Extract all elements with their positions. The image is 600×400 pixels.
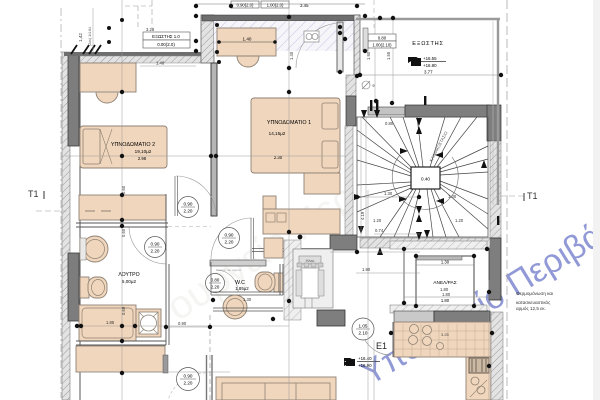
svg-text:1.00(2.10): 1.00(2.10): [372, 43, 392, 48]
svg-text:ΥΠΝΟΔΩΜΑΤΙΟ 2: ΥΠΝΟΔΩΜΑΤΙΟ 2: [111, 142, 155, 148]
svg-text:+16.40: +16.40: [358, 356, 372, 361]
svg-text:(2ον) 1/4:84: (2ον) 1/4:84: [88, 27, 92, 46]
svg-text:0.90: 0.90: [151, 242, 160, 247]
svg-text:1.30: 1.30: [448, 194, 457, 199]
svg-text:0.00(2.0): 0.00(2.0): [157, 42, 175, 47]
svg-text:Φ: Φ: [372, 84, 375, 88]
svg-text:2.98: 2.98: [138, 156, 147, 161]
svg-text:3.77: 3.77: [424, 70, 433, 75]
svg-text:1.90: 1.90: [362, 267, 371, 272]
svg-text:0.69: 0.69: [121, 306, 126, 315]
svg-text:2.20: 2.20: [211, 285, 220, 290]
svg-text:Θερμομόνωση και: Θερμομόνωση και: [516, 290, 553, 296]
svg-text:1,85μ2: 1,85μ2: [235, 286, 249, 291]
svg-text:1.55: 1.55: [386, 51, 391, 60]
svg-text:+16.90: +16.90: [358, 363, 372, 368]
svg-text:2.20: 2.20: [225, 240, 234, 245]
svg-text:2.20: 2.20: [151, 249, 160, 254]
svg-text:2.20: 2.20: [184, 209, 193, 214]
svg-text:0.90: 0.90: [178, 321, 187, 326]
svg-text:3.25: 3.25: [441, 332, 450, 337]
svg-text:0.90: 0.90: [184, 374, 193, 379]
svg-text:1.90: 1.90: [366, 51, 371, 60]
svg-text:+16.80: +16.80: [423, 63, 437, 68]
svg-text:1.00(2.0): 1.00(2.0): [267, 3, 284, 8]
svg-text:ΕΞΩΣΤΗΣ: ΕΞΩΣΤΗΣ: [412, 41, 444, 47]
svg-text:0.74: 0.74: [375, 228, 384, 233]
svg-text:3.28: 3.28: [146, 27, 155, 32]
svg-text:1.30: 1.30: [243, 297, 252, 302]
svg-text:1.80: 1.80: [442, 292, 451, 297]
svg-text:0.40: 0.40: [421, 177, 430, 182]
svg-text:αρμός 12,5 εκ.: αρμός 12,5 εκ.: [516, 305, 546, 311]
svg-text:2.10: 2.10: [359, 331, 368, 336]
svg-text:ΕΞΩΣΤΗΣ 1.0: ΕΞΩΣΤΗΣ 1.0: [152, 34, 180, 39]
svg-text:2.20: 2.20: [184, 381, 193, 386]
svg-text:0.80: 0.80: [211, 278, 220, 283]
svg-text:0.60: 0.60: [121, 185, 126, 194]
svg-text:0.90: 0.90: [225, 233, 234, 238]
svg-text:0.80: 0.80: [378, 36, 387, 41]
svg-text:1.40: 1.40: [243, 37, 252, 42]
svg-text:ΛΟΥΤΡΟ: ΛΟΥΤΡΟ: [118, 272, 139, 278]
svg-text:0.80: 0.80: [385, 121, 394, 126]
svg-text:0.60: 0.60: [121, 228, 126, 237]
svg-text:1.20: 1.20: [373, 218, 382, 223]
svg-text:1.80: 1.80: [441, 298, 450, 303]
svg-text:1.40: 1.40: [289, 51, 294, 60]
svg-text:1.30: 1.30: [441, 260, 450, 265]
svg-text:19,10μ2: 19,10μ2: [135, 149, 152, 154]
svg-text:5,00μ2: 5,00μ2: [122, 279, 137, 284]
svg-text:1.48: 1.48: [156, 61, 165, 66]
svg-text:14,15μ2: 14,15μ2: [269, 131, 286, 136]
svg-text:E1: E1: [376, 341, 387, 351]
svg-text:Ηλεκ: Ηλεκ: [306, 258, 315, 263]
svg-text:Τ1: Τ1: [28, 189, 39, 199]
svg-text:0.90(2.0): 0.90(2.0): [237, 3, 254, 8]
svg-text:4.19: 4.19: [360, 211, 365, 220]
svg-text:0.90: 0.90: [184, 202, 193, 207]
svg-text:1.30: 1.30: [384, 191, 393, 196]
svg-text:ΑΝΕΛ/ΡΑΣ: ΑΝΕΛ/ΡΑΣ: [433, 280, 456, 286]
svg-text:1.05: 1.05: [359, 324, 368, 329]
svg-text:1.20: 1.20: [455, 218, 464, 223]
svg-text:κατασκευαστικός: κατασκευαστικός: [516, 299, 551, 305]
svg-text:1,42: 1,42: [78, 33, 83, 42]
svg-text:Τ1: Τ1: [527, 191, 538, 201]
svg-text:+16.55: +16.55: [423, 56, 437, 61]
svg-text:1.85: 1.85: [106, 320, 115, 325]
